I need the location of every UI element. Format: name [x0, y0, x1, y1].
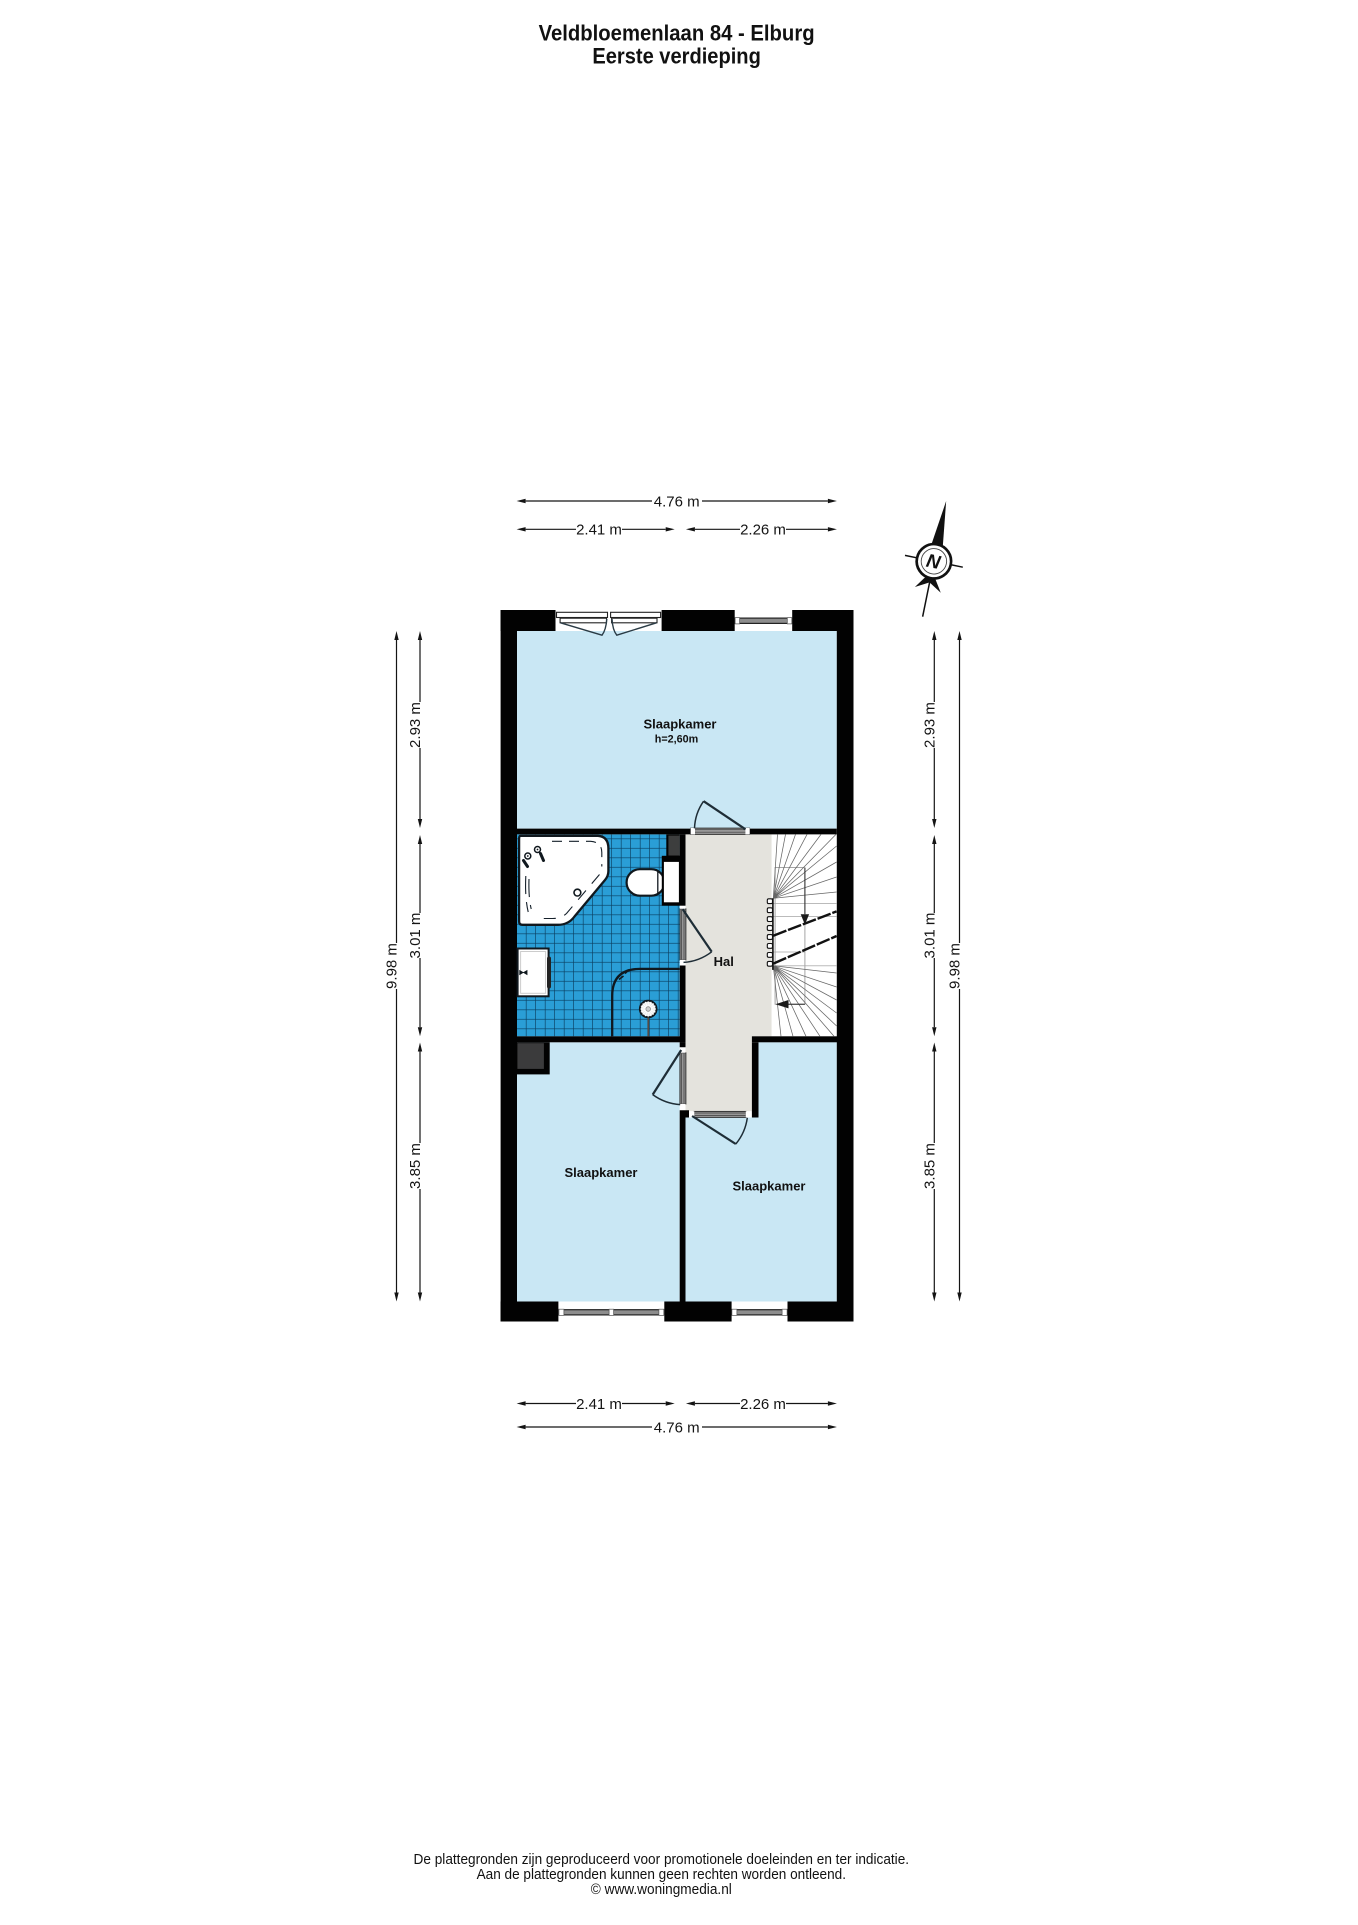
- svg-text:9.98 m: 9.98 m: [947, 943, 964, 989]
- svg-text:Veldbloemenlaan 84 - Elburg: Veldbloemenlaan 84 - Elburg: [539, 21, 815, 46]
- svg-text:4.76 m: 4.76 m: [654, 1419, 700, 1436]
- svg-text:2.41 m: 2.41 m: [576, 522, 622, 539]
- svg-text:Eerste verdieping: Eerste verdieping: [592, 44, 761, 69]
- svg-text:Hal: Hal: [714, 954, 734, 969]
- svg-text:4.76 m: 4.76 m: [654, 493, 700, 510]
- svg-text:Slaapkamer: Slaapkamer: [565, 1165, 638, 1180]
- svg-text:3.01 m: 3.01 m: [407, 913, 424, 959]
- svg-text:2.93 m: 2.93 m: [921, 702, 938, 748]
- svg-text:3.85 m: 3.85 m: [921, 1143, 938, 1189]
- svg-text:Slaapkamer: Slaapkamer: [733, 1179, 806, 1194]
- svg-text:9.98 m: 9.98 m: [384, 943, 401, 989]
- svg-text:3.01 m: 3.01 m: [921, 913, 938, 959]
- svg-text:2.26 m: 2.26 m: [740, 522, 786, 539]
- svg-text:© www.woningmedia.nl: © www.woningmedia.nl: [591, 1881, 732, 1898]
- svg-text:2.41 m: 2.41 m: [576, 1396, 622, 1413]
- svg-text:2.93 m: 2.93 m: [407, 702, 424, 748]
- svg-text:3.85 m: 3.85 m: [407, 1143, 424, 1189]
- svg-text:2.26 m: 2.26 m: [740, 1396, 786, 1413]
- svg-text:h=2,60m: h=2,60m: [655, 734, 699, 746]
- svg-text:Slaapkamer: Slaapkamer: [644, 717, 717, 732]
